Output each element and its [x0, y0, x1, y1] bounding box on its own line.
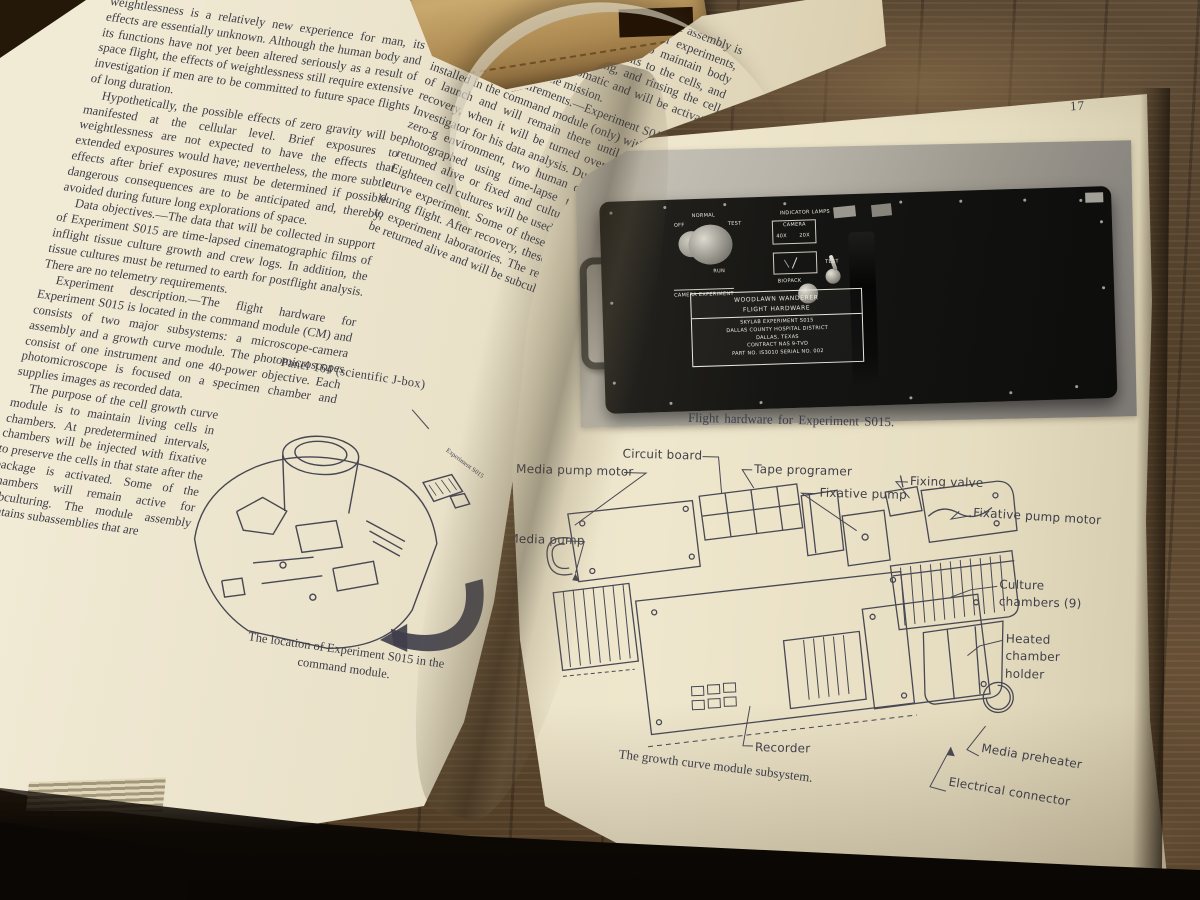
knob-label-off: OFF [674, 222, 685, 228]
growth-curve-module-diagram: Media pump motor Circuit board Tape prog… [497, 437, 1163, 826]
hardware-panel: NORMAL OFF TEST RUN CAMERA EXPERIMENT IN… [599, 186, 1117, 414]
mounting-bracket [871, 203, 892, 217]
photo-of-open-book: weightlessness is a relatively new exper… [0, 0, 1200, 900]
rivet [669, 402, 672, 405]
nameplate: WOODLAWN WANDERER FLIGHT HARDWARE SKYLAB… [690, 288, 864, 367]
camera-lamp-box: CAMERA 40X 20X [772, 219, 817, 244]
knob-label-normal: NORMAL [692, 212, 716, 219]
nameplate-body: SKYLAB EXPERIMENT S015 DALLAS COUNTY HOS… [692, 314, 863, 360]
test-switch-label: TEST [825, 259, 839, 265]
hardware-photograph: NORMAL OFF TEST RUN CAMERA EXPERIMENT IN… [575, 140, 1137, 428]
rivet [609, 212, 612, 215]
rivet [1100, 220, 1103, 223]
indicator-lamps-label: INDICATOR LAMPS [779, 209, 830, 217]
rivet [759, 401, 762, 404]
rivet [723, 203, 726, 206]
mounting-bracket [1085, 192, 1103, 203]
label-heated-chamber-holder: Heated chamber holder [1005, 631, 1078, 685]
label-culture-chambers: Culture chambers (9) [999, 576, 1092, 613]
camera-label: CAMERA [783, 222, 806, 229]
label-fixing-valve: Fixing valve [910, 474, 984, 490]
rivet [1079, 199, 1082, 202]
rivet [1075, 385, 1078, 388]
rivet [909, 396, 912, 399]
label-recorder: Recorder [755, 740, 811, 755]
rivet [613, 382, 616, 385]
knob-label-run: RUN [713, 268, 725, 274]
label-media-pump: Media pump [508, 532, 585, 548]
label-tape-programer: Tape programer [754, 462, 852, 479]
rivet [899, 201, 902, 204]
rivet [783, 202, 786, 205]
rivet [1102, 286, 1105, 289]
knob-label-test: TEST [728, 221, 742, 227]
mag-20x-label: 20X [799, 232, 810, 238]
rivet [610, 302, 613, 305]
gauge-needle [792, 257, 797, 268]
mounting-bracket [833, 205, 856, 218]
label-fixative-pump: Fixative pump [819, 486, 907, 502]
rivet [663, 206, 666, 209]
mag-40x-label: 40X [776, 233, 787, 239]
rivet [1009, 391, 1012, 394]
selector-knob [688, 224, 733, 265]
toggle-switch [825, 269, 840, 284]
label-circuit-board: Circuit board [622, 447, 702, 463]
biopack-gauge [773, 251, 818, 274]
rivet [1023, 199, 1026, 202]
photo-caption: Flight hardware for Experiment S015. [688, 410, 895, 430]
gauge-needle [784, 260, 790, 268]
biopack-label: BIOPACK [778, 278, 802, 285]
rivet [959, 200, 962, 203]
